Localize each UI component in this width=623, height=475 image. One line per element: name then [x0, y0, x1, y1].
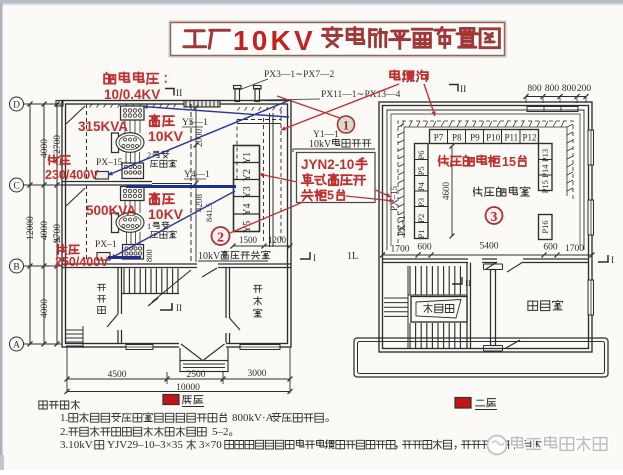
svg-text:P4: P4 [416, 181, 426, 191]
svg-text:10kV: 10kV [309, 139, 332, 150]
svg-text:P7: P7 [434, 133, 444, 143]
svg-text:1: 1 [343, 118, 350, 133]
svg-text:1L: 1L [347, 251, 358, 262]
svg-text:B: B [13, 262, 19, 272]
svg-text:1500: 1500 [239, 235, 258, 245]
svg-text:II: II [176, 89, 182, 99]
svg-text:II: II [176, 303, 182, 313]
svg-text:PX–15: PX–15 [389, 185, 399, 211]
svg-text:800: 800 [527, 84, 542, 94]
svg-text:P12: P12 [522, 133, 536, 143]
svg-text:P14: P14 [540, 164, 550, 178]
svg-text:12000: 12000 [26, 216, 36, 240]
svg-text:P2: P2 [416, 214, 426, 223]
svg-text:1200: 1200 [268, 235, 287, 245]
svg-text:4000: 4000 [40, 139, 50, 158]
svg-text:315KVA: 315KVA [78, 119, 128, 134]
svg-text:：: ： [163, 73, 174, 85]
svg-text:15: 15 [502, 155, 516, 169]
svg-text:II: II [465, 278, 471, 288]
svg-text:200: 200 [577, 84, 592, 94]
svg-text:10KV: 10KV [233, 25, 316, 56]
svg-text:P5: P5 [416, 166, 426, 175]
svg-text:2.: 2. [60, 426, 69, 438]
svg-text:PX–1: PX–1 [95, 240, 117, 250]
svg-text:P1: P1 [416, 230, 426, 239]
svg-text:。: 。 [325, 412, 336, 424]
svg-text:800: 800 [562, 84, 577, 94]
svg-text:800: 800 [545, 84, 560, 94]
svg-text:C: C [13, 181, 19, 191]
svg-text:P9: P9 [470, 133, 480, 143]
svg-text:800kV·A: 800kV·A [232, 412, 274, 424]
svg-text:1.: 1. [60, 412, 69, 424]
svg-text:10KV: 10KV [148, 206, 184, 222]
svg-text:10KV: 10KV [148, 128, 184, 144]
svg-text:P6: P6 [416, 151, 426, 160]
svg-text:Y1: Y1 [242, 152, 253, 164]
svg-text:PX3—1∼PX7—2: PX3—1∼PX7—2 [264, 70, 334, 80]
svg-text:P8: P8 [452, 133, 462, 143]
svg-text:500KVA: 500KVA [86, 203, 136, 218]
svg-text:800: 800 [144, 249, 154, 262]
svg-text:Y2: Y2 [242, 169, 253, 181]
svg-text:1700: 1700 [565, 244, 584, 254]
svg-text:Y4—1: Y4—1 [184, 170, 210, 180]
svg-text:P3: P3 [416, 198, 426, 207]
svg-text:10/0.4KV: 10/0.4KV [104, 87, 160, 102]
svg-text:1: 1 [147, 221, 151, 231]
svg-text:A: A [13, 340, 20, 350]
svg-text:4500: 4500 [108, 370, 127, 380]
svg-text:P16: P16 [540, 220, 550, 233]
svg-text:4000: 4000 [40, 221, 50, 240]
svg-text:5400: 5400 [480, 242, 499, 252]
svg-text:I: I [611, 255, 614, 265]
svg-text:1700: 1700 [391, 245, 410, 255]
svg-text:4000: 4000 [40, 299, 50, 318]
svg-text:600: 600 [417, 243, 432, 253]
svg-text:PX–1: PX–1 [397, 215, 407, 236]
svg-text:5: 5 [327, 189, 334, 203]
svg-text:3000: 3000 [248, 369, 267, 379]
svg-text:P11: P11 [504, 133, 518, 143]
svg-text:II: II [460, 85, 466, 95]
svg-text:600: 600 [543, 243, 558, 253]
svg-text:250/400V: 250/400V [55, 255, 109, 269]
svg-text:P15: P15 [540, 180, 550, 193]
svg-text:3.10kV: 3.10kV [60, 439, 93, 451]
svg-text:Y4: Y4 [242, 203, 253, 215]
svg-text:3: 3 [491, 209, 498, 224]
svg-text:I: I [313, 253, 316, 263]
svg-text:P13: P13 [540, 149, 550, 162]
svg-text:PX–15: PX–15 [96, 158, 123, 168]
svg-text:D: D [13, 100, 20, 110]
svg-text:4600: 4600 [441, 182, 451, 201]
svg-text:YJV29–10–3×35: YJV29–10–3×35 [107, 439, 183, 451]
svg-text:JYN2-10: JYN2-10 [301, 157, 354, 172]
svg-text:5–2。: 5–2。 [212, 426, 240, 438]
svg-text:10kV: 10kV [198, 251, 221, 262]
svg-text:230/400V: 230/400V [45, 168, 99, 182]
svg-text:2: 2 [217, 231, 224, 246]
svg-text:2500: 2500 [187, 370, 206, 380]
svg-text:Y3: Y3 [242, 186, 253, 198]
svg-text:Y5—1: Y5—1 [182, 118, 208, 128]
svg-text:P10: P10 [486, 133, 501, 143]
svg-text:10000: 10000 [176, 383, 200, 393]
svg-text:3×70: 3×70 [199, 439, 222, 451]
